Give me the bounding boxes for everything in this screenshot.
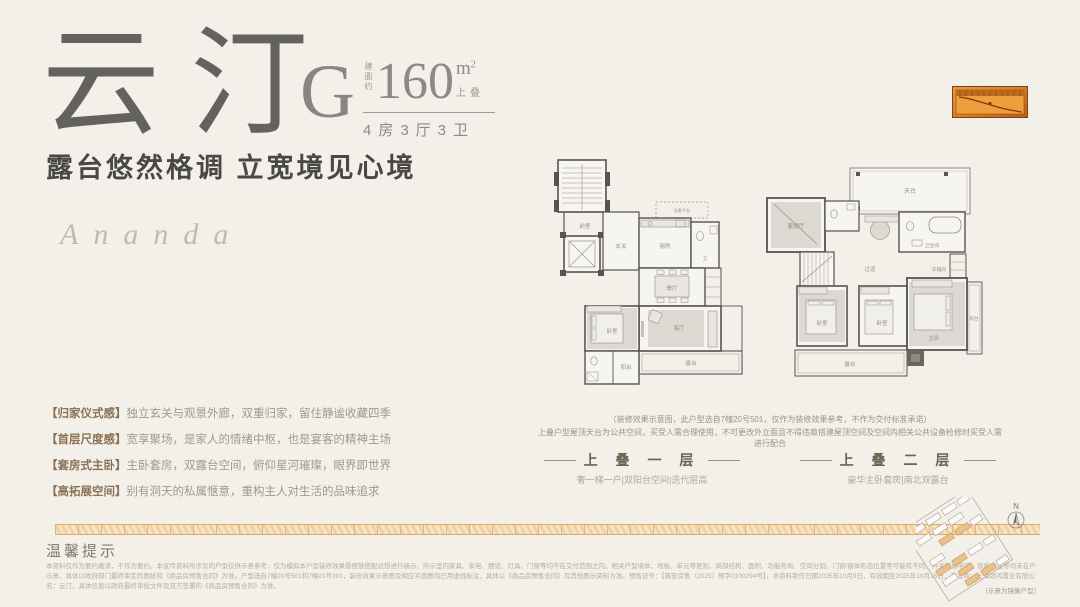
area-prefix-label: 建面约 xyxy=(363,62,374,92)
area-tag-label: 上叠 xyxy=(456,84,484,99)
floor1-label: 上 叠 一 层 xyxy=(584,450,701,470)
room-label-terrace: 露台 xyxy=(685,359,697,367)
feature-item: 【首层尺度感】宽享聚场，是家人的情绪中枢，也是宴客的精神主场 xyxy=(46,427,391,453)
feature-item: 【高拓展空间】别有洞天的私属惬意，重构主人对生活的品味追求 xyxy=(46,479,391,505)
divider-line xyxy=(800,460,832,461)
floor2-label-group: 上 叠 二 层 xyxy=(800,450,996,470)
slogan-text: 露台悠然格调 立宽境见心境 xyxy=(46,146,417,185)
room-label-balcony-right: 阳台 xyxy=(970,315,979,322)
room-label-terrace-bottom: 露台 xyxy=(844,360,856,368)
room-label-roof-terrace: 天台 xyxy=(904,187,916,195)
plan-note-line1: （装修效果示意图，此户型选自7幢20号501，仅作为装修效果参考，不作为交付标准… xyxy=(535,414,1005,425)
floorplan-level1: 前室 玄关 厨房 设备平台 卫 餐厅 客厅 卧室 阳台 露台 xyxy=(528,156,760,408)
feature-head: 【高拓展空间】 xyxy=(46,486,127,498)
floorplan-level2: 天台 家庭厅 卫生间 衣帽间 过道 卧室 卧室 主卧 阳台 露台 xyxy=(762,154,1000,409)
floor1-label-group: 上 叠 一 层 xyxy=(544,450,740,470)
disclaimer-line3: 名：云汀。具体信息以政府最终审批文件及双方签署的《商品房预售合同》为准。 xyxy=(46,582,906,592)
decorative-ribbon-band xyxy=(55,524,1040,535)
feature-item: 【归家仪式感】独立玄关与观景外廊，双重归家，留住静谧收藏四季 xyxy=(46,401,391,427)
room-label-bed2: 卧室 xyxy=(876,319,888,327)
compass-north-label: N xyxy=(1013,502,1019,511)
divider-line xyxy=(544,460,576,461)
room-label-dining: 餐厅 xyxy=(666,284,678,292)
room-label-kitchen: 厨房 xyxy=(659,242,671,250)
feature-head: 【归家仪式感】 xyxy=(46,408,127,420)
rooms-count-label: 4房3厅3卫 xyxy=(363,119,495,140)
siteplan-map: N （示意为镜像户型） xyxy=(916,497,1044,602)
plan-note-line2: 上叠户型屋顶天台为公共空间，买受人需合理使用，不可更改外立面且不得违章搭建屋顶空… xyxy=(535,427,1005,449)
compass-icon: N xyxy=(1008,502,1024,528)
spec-divider xyxy=(363,112,495,113)
poster-canvas: 云 汀 G 建面约 160 m2 上叠 4房3厅3卫 露台悠然格调 立宽境见心境… xyxy=(0,0,1080,607)
feature-body: 独立玄关与观景外廊，双重归家，留住静谧收藏四季 xyxy=(127,408,392,420)
disclaimer-line1: 本资料仅作为要约邀请，不作为要约。本宣传资料所涉及的户型仅供示意参考，仅为模拟本… xyxy=(46,562,1036,572)
divider-line xyxy=(708,460,740,461)
room-label-bath2: 卫生间 xyxy=(925,242,940,249)
feature-body: 宽享聚场，是家人的情绪中枢，也是宴客的精神主场 xyxy=(127,434,392,446)
room-label-balcony: 阳台 xyxy=(620,363,632,371)
room-label-foyer: 前室 xyxy=(579,222,591,230)
floor2-label: 上 叠 二 层 xyxy=(840,450,957,470)
area-spec-block: 建面约 160 m2 上叠 4房3厅3卫 xyxy=(363,56,495,140)
copper-logo xyxy=(952,86,1028,118)
floor2-caption: 豪华主卧套房|南北双露台 xyxy=(800,473,996,486)
feature-item: 【套房式主卧】主卧套房，双露台空间，俯仰星河璀璨，眼界即世界 xyxy=(46,453,391,479)
feature-body: 别有洞天的私属惬意，重构主人对生活的品味追求 xyxy=(127,486,380,498)
unit-type-letter: G xyxy=(300,54,355,130)
room-label-equip: 设备平台 xyxy=(674,207,691,214)
feature-head: 【套房式主卧】 xyxy=(46,460,127,472)
room-label-bedroom: 卧室 xyxy=(606,327,618,335)
page-title-char-2: 汀 xyxy=(190,26,308,144)
area-value: 160 xyxy=(376,56,454,108)
room-label-cloak: 衣帽间 xyxy=(932,266,947,273)
feature-list: 【归家仪式感】独立玄关与观景外廊，双重归家，留住静谧收藏四季 【首层尺度感】宽享… xyxy=(46,401,391,505)
brand-wordmark: Ananda xyxy=(60,218,243,252)
floor1-caption: 奢一梯一户|双阳台空间|迭代层高 xyxy=(544,473,740,486)
room-label-hall: 过道 xyxy=(864,265,876,273)
page-title-char-1: 云 xyxy=(42,26,160,144)
room-label-entry: 玄关 xyxy=(615,242,627,250)
room-label-family: 家庭厅 xyxy=(788,222,805,230)
feature-body: 主卧套房，双露台空间，俯仰星河璀璨，眼界即世界 xyxy=(127,460,392,472)
feature-head: 【首层尺度感】 xyxy=(46,434,127,446)
disclaimer-line2: 示意，具体以政府部门最终审定的图纸和《商品房预售合同》为准。户型选自7幢20号5… xyxy=(46,572,1036,582)
room-label-bath1: 卫 xyxy=(703,256,708,261)
area-unit: m xyxy=(456,58,471,79)
room-label-bed1: 卧室 xyxy=(816,319,828,327)
area-superscript: 2 xyxy=(471,60,476,71)
room-label-living: 客厅 xyxy=(673,324,685,332)
siteplan-caption: （示意为镜像户型） xyxy=(982,586,1041,595)
divider-line xyxy=(964,460,996,461)
room-label-master: 主卧 xyxy=(928,334,940,342)
notice-title: 温馨提示 xyxy=(46,540,118,561)
